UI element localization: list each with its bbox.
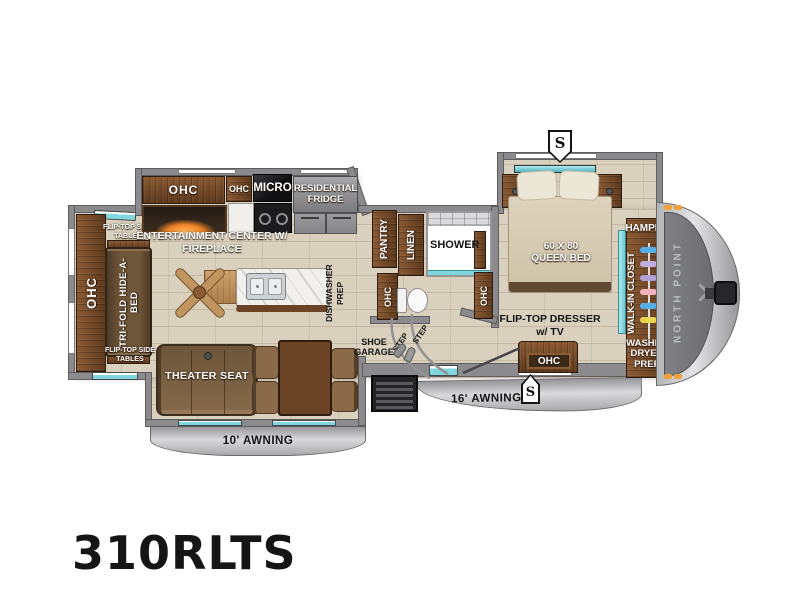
- hanger-4: [640, 289, 657, 295]
- residential-fridge: RESIDENTIAL FRIDGE: [293, 176, 358, 213]
- step-tread-5: [376, 406, 413, 409]
- wall-kitchen-slide-left: [135, 168, 142, 216]
- step-tread-3: [376, 394, 413, 397]
- theater-seat-seam-right: [224, 350, 225, 414]
- nightstand-right-knob: [606, 188, 613, 195]
- bed-footer: [509, 282, 611, 292]
- window-kitchen-slide-1: [178, 169, 236, 174]
- pillow-right: [558, 170, 599, 201]
- kitchen-ohc-small: OHC: [226, 176, 252, 202]
- shower-tile-header: [428, 213, 490, 226]
- step-tread-1: [376, 382, 413, 385]
- entry-curves-overlay: [330, 300, 530, 420]
- marker-light-top-1: [664, 205, 672, 210]
- tri-fold-sofa: TRI-FOLD HIDE-A-BED: [105, 247, 152, 357]
- shower-label: SHOWER: [430, 239, 476, 251]
- sink-drain-left: [256, 285, 259, 288]
- dinette-chair-bottom-left: [252, 381, 279, 414]
- kitchen-ohc-small-label: OHC: [229, 184, 249, 194]
- burner-right: [276, 213, 288, 225]
- linen-cabinet: LINEN: [398, 214, 424, 276]
- window-left-lower: [68, 302, 75, 354]
- queen-bed: 60 X 80 QUEEN BED: [508, 196, 612, 293]
- ceiling-fan-icon: [167, 260, 233, 326]
- bed-label: 60 X 80 QUEEN BED: [525, 241, 597, 265]
- fridge-door-divider: [325, 214, 327, 233]
- fridge-handle-left: [301, 217, 319, 219]
- hanger-2: [640, 261, 657, 267]
- walk-in-closet-label: WALK-IN CLOSET: [626, 244, 639, 342]
- entry-steps: [371, 375, 418, 412]
- closet-mirror: [618, 230, 626, 334]
- burner-left: [259, 213, 271, 225]
- kitchen-counter: [228, 203, 254, 233]
- marker-light-bottom-2: [674, 374, 682, 379]
- floorplan-310rlts: 10' AWNING 16' AWNING OHC TRI-FOLD HIDE-…: [0, 0, 800, 600]
- step-tread-2: [376, 388, 413, 391]
- marker-light-top-2: [674, 205, 682, 210]
- pantry-label: PANTRY: [379, 219, 390, 259]
- microwave: MICRO: [253, 174, 292, 202]
- theater-seat-label: THEATER SEAT: [158, 370, 256, 382]
- shoe-garage-label: SHOE GARAGE: [352, 337, 396, 358]
- sink-drain-right: [274, 285, 277, 288]
- wall-living-slide-left: [145, 372, 152, 426]
- step-tread-4: [376, 400, 413, 403]
- double-sink: [246, 273, 286, 300]
- theater-seat-seam-left: [191, 350, 192, 414]
- dresser-ohc-plaque: OHC: [527, 353, 571, 369]
- awning-10ft-label: 10' AWNING: [223, 435, 294, 447]
- kitchen-ohc-long-label: OHC: [169, 183, 199, 197]
- window-kitchen-slide-2: [300, 169, 348, 174]
- window-living-slide-2: [272, 420, 336, 426]
- window-rear-corner-bottom: [92, 372, 138, 380]
- microwave-label: MICRO: [253, 182, 291, 194]
- marker-light-bottom-1: [664, 374, 672, 379]
- window-left-upper: [68, 228, 75, 276]
- pillow-left: [516, 170, 557, 201]
- hitch-pin-icon: [714, 281, 737, 305]
- dinette-table: [278, 340, 332, 416]
- entertainment-center: [142, 205, 227, 233]
- entertainment-center-label: ENTERTAINMENT CENTER W/ FIREPLACE: [136, 230, 288, 255]
- shower: SHOWER: [426, 211, 492, 277]
- dinette-chair-top-left: [252, 346, 279, 379]
- pantry-cabinet: PANTRY: [372, 210, 397, 268]
- hanger-6: [640, 317, 657, 323]
- rear-ohc-label: OHC: [84, 277, 99, 309]
- hanger-1: [640, 247, 657, 253]
- window-living-slide-1: [178, 420, 242, 426]
- residential-fridge-label: RESIDENTIAL FRIDGE: [294, 184, 357, 206]
- theater-seat: THEATER SEAT: [156, 344, 258, 416]
- entry-door-swing: [463, 348, 520, 373]
- awning-10ft: 10' AWNING: [150, 426, 366, 456]
- dresser-ohc-label: OHC: [538, 356, 560, 367]
- fridge-body: [294, 213, 357, 234]
- theater-seat-cupholder: [204, 352, 212, 360]
- front-cap-brand: NORTH POINT: [670, 236, 686, 348]
- hanger-3: [640, 275, 657, 281]
- hanger-5: [640, 303, 657, 309]
- sofa-label: TRI-FOLD HIDE-A-BED: [118, 249, 140, 355]
- kitchen-ohc-long: OHC: [142, 176, 225, 204]
- fridge-handle-right: [333, 217, 351, 219]
- cooktop: [254, 203, 292, 233]
- fan-hub: [193, 286, 206, 299]
- model-name: 310RLTS: [72, 526, 297, 580]
- flip-top-tables-bottom-label: FLIP-TOP SIDE TABLES: [102, 347, 158, 365]
- linen-label: LINEN: [406, 230, 417, 260]
